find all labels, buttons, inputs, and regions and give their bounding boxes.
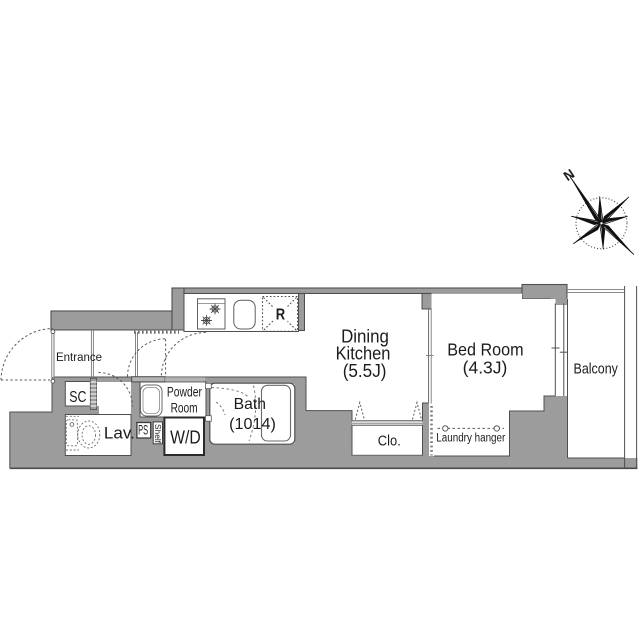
svg-text:Shelf: Shelf xyxy=(153,424,163,444)
svg-text:W/D: W/D xyxy=(170,426,201,447)
svg-text:PS: PS xyxy=(138,423,148,438)
svg-text:(5.5J): (5.5J) xyxy=(343,361,387,381)
svg-text:Lav.: Lav. xyxy=(104,425,135,443)
svg-text:Clo.: Clo. xyxy=(378,432,401,449)
svg-text:Entrance: Entrance xyxy=(56,350,102,364)
svg-text:(1014): (1014) xyxy=(229,416,276,433)
svg-text:Room: Room xyxy=(171,401,198,416)
svg-text:R: R xyxy=(276,306,285,323)
svg-text:Balcony: Balcony xyxy=(574,361,619,377)
svg-text:Powder: Powder xyxy=(167,385,202,400)
svg-text:Laundry hanger: Laundry hanger xyxy=(436,432,505,444)
svg-text:(4.3J): (4.3J) xyxy=(463,358,508,378)
svg-text:SC: SC xyxy=(69,389,86,406)
svg-text:Bath: Bath xyxy=(234,396,266,413)
